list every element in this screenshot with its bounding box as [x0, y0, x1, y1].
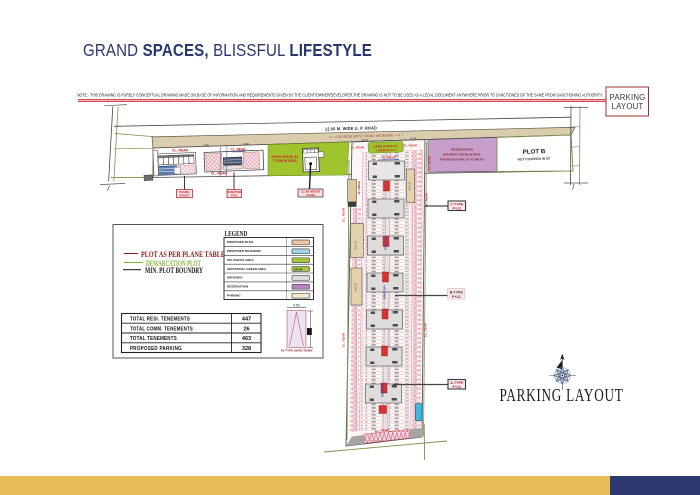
svg-text:A.O.S.: A.O.S.	[354, 282, 358, 291]
svg-text:DRIVE WAY: DRIVE WAY	[383, 285, 387, 300]
svg-text:CL. REAR: CL. REAR	[428, 155, 432, 170]
svg-text:CL. REAR: CL. REAR	[172, 149, 189, 153]
svg-text:CL. REAR: CL. REAR	[230, 148, 246, 152]
svg-text:CL. REAR: CL. REAR	[351, 146, 366, 150]
svg-text:STN.: STN.	[231, 194, 238, 198]
svg-text:A2 TYPE (OHE) TOWN: A2 TYPE (OHE) TOWN	[281, 348, 313, 352]
svg-text:CL. REAR: CL. REAR	[342, 207, 346, 222]
svg-text:ADDITIONAL GREEN AREA: ADDITIONAL GREEN AREA	[227, 267, 267, 271]
svg-text:A.O.S.: A.O.S.	[354, 240, 358, 249]
svg-text:RESERVATION: RESERVATION	[227, 285, 248, 289]
svg-text:463: 463	[242, 336, 251, 342]
svg-text:PROPOSED P.PLOT AT REAR: PROPOSED P.PLOT AT REAR	[440, 158, 484, 162]
svg-text:GRAND SPACES, BLISSFUL LIFESTY: GRAND SPACES, BLISSFUL LIFESTYLE	[83, 40, 372, 60]
svg-text:7500: 7500	[203, 143, 209, 147]
svg-text:LAYOUT: LAYOUT	[612, 102, 644, 111]
svg-text:CL. REAR: CL. REAR	[342, 332, 346, 347]
svg-text:PLOT AS PER PLANE TABLE: PLOT AS PER PLANE TABLE	[141, 250, 225, 259]
svg-text:5.50: 5.50	[293, 304, 299, 308]
svg-text:CL. REAR: CL. REAR	[382, 156, 397, 160]
svg-text:RESERVATION: RESERVATION	[451, 148, 474, 152]
svg-text:PLOT B: PLOT B	[523, 148, 546, 156]
svg-text:26: 26	[243, 326, 249, 332]
svg-text:12.00: 12.00	[410, 138, 417, 141]
svg-text:12.00: 12.00	[362, 139, 369, 142]
svg-text:GR AR: GR AR	[294, 268, 302, 272]
svg-text:W/SURVEY/DESIGN REAL: W/SURVEY/DESIGN REAL	[443, 153, 482, 157]
svg-text:TOTAL COMM. TENEMENTS: TOTAL COMM. TENEMENTS	[130, 326, 193, 332]
svg-text:PARKING: PARKING	[610, 93, 646, 102]
svg-text:A.O.S.: A.O.S.	[408, 181, 412, 190]
svg-text:CL. REAR: CL. REAR	[425, 192, 429, 207]
svg-text:DRIVE WAY: DRIVE WAY	[381, 383, 385, 398]
svg-text:CL. REAR: CL. REAR	[403, 143, 418, 147]
svg-text:PROPOSED PARKING: PROPOSED PARKING	[130, 346, 182, 352]
svg-text:PARKING LAYOUT: PARKING LAYOUT	[500, 385, 624, 405]
svg-text:PROPOSED ROAD/RSD: PROPOSED ROAD/RSD	[227, 249, 262, 253]
svg-text:P+12: P+12	[453, 385, 462, 389]
svg-text:CL. REAR: CL. REAR	[424, 322, 428, 337]
svg-text:TOTAL RESI. TENEMENTS: TOTAL RESI. TENEMENTS	[130, 317, 190, 323]
svg-text:DRIVEWAY: DRIVEWAY	[227, 276, 243, 280]
svg-text:7 TENOR REAL: 7 TENOR REAL	[273, 159, 298, 163]
svg-text:(OHE): (OHE)	[306, 193, 315, 197]
svg-text:MIN. PLOT BOUNDRY: MIN. PLOT BOUNDRY	[145, 265, 204, 275]
svg-text:+ (OHE) R+2 A: + (OHE) R+2 A	[375, 148, 396, 153]
svg-text:SPACE: SPACE	[179, 194, 189, 198]
svg-text:P+12: P+12	[453, 207, 462, 211]
svg-text:328: 328	[242, 346, 251, 352]
svg-text:CL. REAR: CL. REAR	[357, 181, 361, 194]
svg-text:SPLASH/OS AREA: SPLASH/OS AREA	[227, 258, 254, 262]
svg-text:P+12: P+12	[452, 295, 461, 299]
svg-text:PROPOSED BLDG.: PROPOSED BLDG.	[227, 240, 254, 244]
svg-text:TOTAL TENEMENTS: TOTAL TENEMENTS	[130, 336, 177, 342]
svg-text:NOTE:- THIS DRAWING IS PURELY: NOTE:- THIS DRAWING IS PURELY CONCEPTUAL…	[77, 93, 603, 98]
svg-text:PARKING: PARKING	[227, 294, 241, 298]
svg-text:447: 447	[242, 317, 251, 323]
svg-text:7500: 7500	[243, 142, 249, 146]
svg-text:LEGEND: LEGEND	[225, 231, 248, 238]
svg-text:CL. REAR: CL. REAR	[211, 172, 228, 176]
svg-text:DRIVE WAY: DRIVE WAY	[384, 236, 388, 251]
